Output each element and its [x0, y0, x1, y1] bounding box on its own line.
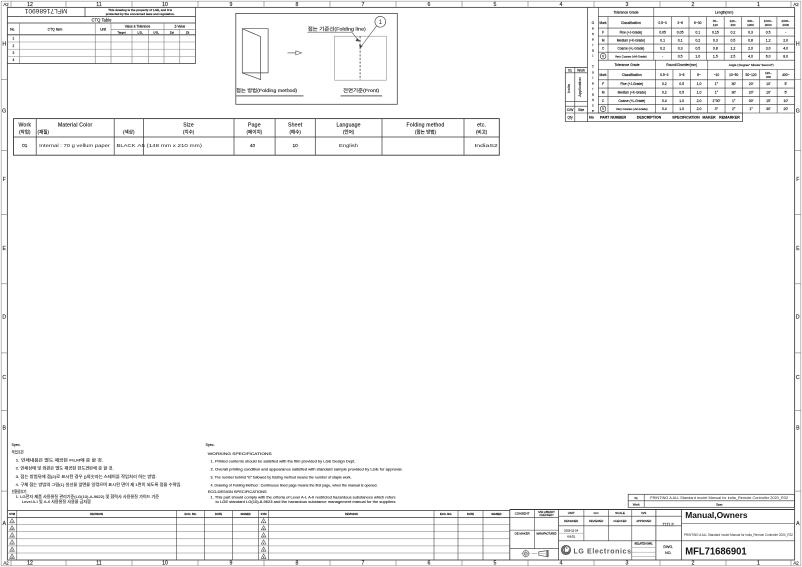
svg-text:4000: 4000	[782, 23, 789, 27]
svg-text:400~: 400~	[782, 73, 790, 77]
svg-text:2000: 2000	[765, 23, 772, 27]
svg-text:3.0: 3.0	[766, 46, 771, 50]
svg-text:5': 5'	[784, 82, 787, 86]
svg-text:Tolerance Grade: Tolerance Grade	[614, 63, 639, 67]
svg-text:0.5: 0.5	[679, 82, 684, 86]
svg-text:REMARKER: REMARKER	[719, 116, 740, 120]
svg-text:A: A	[2, 521, 6, 527]
svg-text:C: C	[796, 375, 800, 381]
svg-text:0.2: 0.2	[660, 46, 665, 50]
svg-text:1°30': 1°30'	[712, 99, 720, 103]
svg-text:MANUFACTURED: MANUFACTURED	[537, 532, 557, 535]
svg-text:Page: Page	[248, 123, 261, 129]
svg-text:0.3: 0.3	[748, 30, 753, 34]
svg-text:CHECKED?: CHECKED?	[539, 513, 554, 517]
svg-text:etc.: etc.	[477, 123, 486, 129]
svg-text:E: E	[2, 246, 6, 252]
svg-text:8: 8	[296, 2, 299, 8]
svg-text:접는 방법(Folding method): 접는 방법(Folding method)	[236, 87, 298, 93]
svg-text:Z-Value: Z-Value	[174, 25, 185, 29]
svg-text:MFL71686901: MFL71686901	[685, 546, 747, 557]
svg-text:30': 30'	[731, 90, 736, 94]
svg-text:B: B	[796, 426, 800, 432]
svg-text:01: 01	[635, 496, 639, 500]
svg-text:SYM: SYM	[9, 512, 16, 516]
svg-text:M: M	[602, 38, 605, 42]
svg-text:H: H	[2, 42, 6, 48]
svg-text:DWG.: DWG.	[663, 545, 673, 549]
svg-text:1: 1	[13, 37, 15, 41]
svg-text:0.4: 0.4	[662, 99, 667, 103]
svg-text:30': 30'	[731, 82, 736, 86]
svg-text:Coarse (+L-Grade): Coarse (+L-Grade)	[618, 99, 645, 103]
svg-text:protected by the concerned law: protected by the concerned laws and regu…	[106, 12, 175, 16]
svg-text:C: C	[2, 375, 6, 381]
svg-text:~10: ~10	[714, 73, 720, 77]
svg-text:Qty: Qty	[567, 116, 573, 120]
svg-text:A2: A2	[3, 2, 9, 7]
svg-text:4: 4	[560, 561, 563, 567]
svg-text:Folding method: Folding method	[407, 123, 445, 129]
svg-text:to LGE standard LG(10)-8-9623: to LGE standard LG(10)-8-9623 and the ha…	[216, 499, 396, 504]
svg-text:3. The number behind "E" follo: 3. The number behind "E" followed by fol…	[211, 474, 352, 479]
svg-text:9: 9	[230, 561, 233, 567]
svg-text:0.3: 0.3	[678, 46, 683, 50]
svg-text:F: F	[602, 30, 604, 34]
svg-text:(치수): (치수)	[183, 128, 195, 135]
svg-text:PRINTING A ALL Standard model: PRINTING A ALL Standard model Manual for…	[684, 533, 793, 537]
svg-text:6.0: 6.0	[766, 54, 771, 58]
svg-text:1.0: 1.0	[679, 107, 684, 111]
svg-text:(재질): (재질)	[38, 128, 50, 135]
svg-text:N/S: N/S	[641, 511, 646, 515]
svg-text:G: G	[592, 21, 595, 25]
svg-text:SIGNED: SIGNED	[240, 512, 250, 516]
svg-text:Spec.: Spec.	[206, 443, 215, 447]
svg-text:B: B	[2, 426, 6, 432]
svg-text:UNIT: UNIT	[568, 511, 575, 515]
svg-text:20': 20'	[749, 82, 754, 86]
svg-text:0.5: 0.5	[695, 46, 700, 50]
svg-text:a: a	[592, 49, 594, 53]
svg-text:0.5~3: 0.5~3	[660, 73, 669, 77]
svg-text:MFL71686901: MFL71686901	[24, 7, 67, 14]
svg-text:0.1: 0.1	[678, 38, 683, 42]
svg-text:a: a	[592, 93, 594, 97]
svg-text:F: F	[602, 82, 604, 86]
svg-text:IndiaS2: IndiaS2	[474, 143, 498, 149]
svg-text:Medium (+K-Grade): Medium (+K-Grade)	[617, 38, 645, 42]
svg-text:(색상): (색상)	[123, 128, 135, 135]
svg-text:DESCRIPTION: DESCRIPTION	[637, 116, 662, 120]
svg-text:Manual,Owners: Manual,Owners	[685, 510, 748, 520]
svg-text:TITLE: TITLE	[662, 522, 674, 527]
svg-text:RELATED DWG.: RELATED DWG.	[635, 543, 654, 546]
svg-text:9: 9	[230, 2, 233, 8]
svg-text:Work: Work	[633, 502, 640, 506]
svg-text:DATE: DATE	[467, 512, 474, 516]
svg-text:0.8: 0.8	[748, 38, 753, 42]
svg-text:20': 20'	[749, 90, 754, 94]
svg-text:Language: Language	[336, 123, 360, 129]
svg-text:(페이지): (페이지)	[247, 128, 263, 135]
svg-text:Tolerance Grade: Tolerance Grade	[613, 10, 638, 14]
svg-text:1: 1	[379, 19, 383, 26]
svg-text:1: 1	[757, 2, 760, 8]
svg-text:4.0: 4.0	[783, 46, 788, 50]
svg-text:Spec: Spec	[716, 502, 723, 506]
svg-text:Unit: Unit	[100, 28, 106, 32]
svg-text:Internal : 70 g vellum paper: Internal : 70 g vellum paper	[39, 143, 110, 149]
svg-text:Spec.: Spec.	[12, 443, 21, 447]
svg-text:G: G	[796, 109, 800, 115]
svg-text:2.0: 2.0	[697, 107, 702, 111]
svg-text:Application: Application	[577, 77, 582, 97]
svg-text:0.05: 0.05	[677, 30, 684, 34]
svg-text:30': 30'	[749, 99, 754, 103]
svg-text:1°: 1°	[715, 90, 719, 94]
svg-text:6: 6	[428, 2, 431, 8]
svg-text:G: G	[2, 109, 6, 115]
svg-text:2. Overall printing condition: 2. Overall printing condition and appear…	[211, 466, 403, 471]
svg-text:2.0: 2.0	[697, 99, 702, 103]
svg-text:Size: Size	[578, 108, 584, 112]
svg-text:Size: Size	[183, 123, 194, 129]
svg-text:10': 10'	[766, 90, 771, 94]
svg-text:3. 접는 방법뒤에 접(2)로 표시된 경우 ()의숫자는: 3. 접는 방법뒤에 접(2)로 표시된 경우 ()의숫자는 스테이플 작업처리…	[16, 473, 157, 479]
svg-text:E: E	[796, 246, 800, 252]
svg-text:H: H	[796, 42, 800, 48]
svg-text:5': 5'	[784, 90, 787, 94]
svg-text:4: 4	[560, 2, 563, 8]
svg-text:15': 15'	[766, 99, 771, 103]
svg-text:SYM: SYM	[261, 512, 268, 516]
svg-text:4: 4	[13, 58, 15, 62]
svg-text:5: 5	[494, 2, 497, 8]
svg-text:접는 기준선(Folding line): 접는 기준선(Folding line)	[308, 26, 367, 33]
svg-text:ECO. NO.: ECO. NO.	[185, 512, 197, 516]
svg-text:T: T	[592, 65, 594, 69]
svg-text:e: e	[592, 38, 594, 42]
svg-text:1.0: 1.0	[697, 82, 702, 86]
svg-text:3~6: 3~6	[679, 73, 685, 77]
svg-text:1.2: 1.2	[766, 38, 771, 42]
svg-text:1°: 1°	[715, 82, 719, 86]
svg-text:0.4: 0.4	[662, 107, 667, 111]
svg-text:4. Drawing of Folding Method :: 4. Drawing of Folding Method : Continuou…	[211, 483, 378, 488]
svg-text:Classification: Classification	[622, 73, 642, 77]
svg-text:10: 10	[162, 561, 168, 567]
svg-text:Angle (:Degree° Minute' Second: Angle (:Degree° Minute' Second″)	[729, 63, 774, 67]
svg-text:0.2: 0.2	[731, 30, 736, 34]
svg-text:Coarse (+L-Grade): Coarse (+L-Grade)	[617, 46, 644, 50]
svg-text:NO.: NO.	[665, 551, 671, 555]
svg-text:4.0: 4.0	[748, 54, 753, 58]
svg-text:D: D	[2, 315, 6, 321]
svg-text:10~50: 10~50	[729, 73, 738, 77]
svg-text:India: India	[566, 83, 571, 92]
svg-text:WORKING SPECIFICATIONS: WORKING SPECIFICATIONS	[208, 451, 272, 456]
svg-text:0.5: 0.5	[679, 90, 684, 94]
svg-text:No: No	[589, 116, 595, 120]
svg-text:6~30: 6~30	[694, 21, 702, 25]
svg-text:BLACK: BLACK	[117, 143, 137, 149]
svg-text:OE MAKER: OE MAKER	[514, 531, 529, 535]
svg-text:A2: A2	[3, 561, 9, 566]
svg-text:DESIGNED: DESIGNED	[564, 519, 578, 523]
svg-text:Level A-I 및 A-II 사용물질 사용을 금지함: Level A-I 및 A-II 사용물질 사용을 금지함	[22, 498, 91, 504]
svg-text:Value & Tolerance: Value & Tolerance	[125, 25, 151, 29]
svg-text:REVIEWED: REVIEWED	[589, 519, 603, 523]
svg-text:Material Color: Material Color	[58, 123, 93, 129]
svg-text:20': 20'	[784, 107, 789, 111]
svg-text:SPECIFICATION: SPECIFICATION	[672, 116, 700, 120]
svg-text:10: 10	[162, 2, 168, 8]
svg-text:0.1: 0.1	[695, 30, 700, 34]
svg-text:10: 10	[293, 143, 299, 149]
svg-text:6: 6	[428, 561, 431, 567]
svg-text:(작업): (작업)	[19, 128, 31, 135]
svg-text:M: M	[602, 90, 605, 94]
svg-text:01: 01	[568, 68, 572, 72]
svg-text:LSL: LSL	[138, 31, 144, 35]
svg-text:No.: No.	[10, 28, 15, 32]
svg-text:(비고): (비고)	[476, 128, 488, 135]
svg-text:2.5: 2.5	[731, 54, 736, 58]
svg-text:1: 1	[757, 561, 760, 567]
svg-text:Length(mm): Length(mm)	[715, 10, 733, 14]
svg-text:01: 01	[22, 143, 28, 149]
svg-text:Fine (+J-Grade): Fine (+J-Grade)	[621, 82, 644, 86]
svg-text:1°: 1°	[749, 107, 753, 111]
svg-text:Zst: Zst	[170, 31, 174, 35]
svg-text:English: English	[339, 143, 358, 149]
svg-text:Fine (+J-Grade): Fine (+J-Grade)	[620, 30, 643, 34]
svg-text:Work: Work	[19, 123, 32, 129]
svg-text:3~6: 3~6	[677, 21, 683, 25]
svg-text:(접는 방법): (접는 방법)	[415, 128, 437, 134]
svg-text:2.0: 2.0	[748, 46, 753, 50]
svg-text:120: 120	[713, 23, 718, 27]
svg-text:1.0: 1.0	[695, 54, 700, 58]
svg-text:PRINTING A ALL Standard model: PRINTING A ALL Standard model Manual for…	[650, 496, 788, 500]
svg-text:7: 7	[362, 561, 365, 567]
svg-text:CTQ Table: CTQ Table	[92, 17, 113, 22]
svg-text:(언어): (언어)	[343, 128, 355, 135]
svg-text:n: n	[592, 98, 594, 102]
svg-text:PART NUMBER: PART NUMBER	[600, 116, 627, 120]
svg-text:DATE: DATE	[215, 512, 222, 516]
svg-text:LG Electronics: LG Electronics	[574, 548, 632, 555]
svg-text:11: 11	[96, 2, 101, 8]
svg-text:1.0: 1.0	[679, 99, 684, 103]
svg-text:0.1: 0.1	[660, 38, 665, 42]
svg-text:7: 7	[362, 2, 365, 8]
svg-text:40: 40	[250, 143, 256, 149]
svg-text:Round/Chamfer(mm): Round/Chamfer(mm)	[666, 63, 697, 67]
svg-text:D: D	[796, 315, 800, 321]
svg-text:작업조건: 작업조건	[12, 449, 24, 455]
svg-text:e: e	[592, 82, 594, 86]
svg-text:A: A	[796, 521, 800, 527]
svg-text:A5 (148 mm x 210 mm): A5 (148 mm x 210 mm)	[137, 143, 202, 149]
svg-text:1.2: 1.2	[731, 46, 736, 50]
svg-text:12: 12	[27, 2, 33, 8]
svg-text:F: F	[3, 177, 6, 183]
svg-text:8.0: 8.0	[783, 54, 788, 58]
svg-text:400: 400	[730, 23, 735, 27]
svg-text:0.8: 0.8	[713, 46, 718, 50]
svg-text:3: 3	[626, 2, 629, 8]
svg-text:CONSENT: CONSENT	[515, 512, 530, 516]
svg-text:0.15: 0.15	[712, 30, 719, 34]
svg-text:2019-11-14: 2019-11-14	[564, 528, 579, 532]
svg-text:Zlt: Zlt	[186, 31, 189, 35]
svg-text:F: F	[796, 177, 799, 183]
svg-text:1°: 1°	[732, 99, 736, 103]
svg-text:8: 8	[296, 561, 299, 567]
svg-text:2. 인쇄상태 및 외관은 별도 제공된 한도견본에 준 할: 2. 인쇄상태 및 외관은 별도 제공된 한도견본에 준 할 것.	[16, 464, 114, 470]
svg-text:REVISION: REVISION	[90, 512, 103, 516]
svg-text:12: 12	[27, 561, 33, 567]
svg-text:0.5~3: 0.5~3	[658, 21, 667, 25]
svg-text:o: o	[592, 71, 594, 75]
svg-text:0.2: 0.2	[662, 82, 667, 86]
svg-text:3°: 3°	[715, 107, 719, 111]
svg-text:0.05: 0.05	[659, 30, 666, 34]
svg-text:Mark: Mark	[600, 21, 607, 25]
svg-text:10': 10'	[784, 99, 789, 103]
svg-text:1. 인쇄내용은 별도 제공된 FILM에 준 할 것.: 1. 인쇄내용은 별도 제공된 FILM에 준 할 것.	[16, 457, 104, 463]
svg-text:APPROVED: APPROVED	[636, 519, 651, 523]
svg-text:(매수): (매수)	[289, 128, 301, 135]
svg-text:ECO. NO.: ECO. NO.	[440, 512, 452, 516]
svg-text:0.2: 0.2	[662, 90, 667, 94]
svg-text:USL: USL	[153, 31, 159, 35]
svg-text:3: 3	[13, 51, 15, 55]
svg-text:Classification: Classification	[621, 21, 641, 25]
svg-text:2: 2	[13, 44, 15, 48]
svg-text:6:6:51: 6:6:51	[567, 535, 575, 539]
svg-text:Medium (+K-Grade): Medium (+K-Grade)	[618, 90, 646, 94]
svg-text:2.0: 2.0	[783, 38, 788, 42]
svg-text:Very Coarse (+M-Grade): Very Coarse (+M-Grade)	[615, 54, 647, 58]
svg-text:n: n	[592, 32, 594, 36]
svg-text:1000: 1000	[747, 23, 754, 27]
svg-text:2: 2	[692, 2, 695, 8]
svg-text:Mark: Mark	[600, 73, 607, 77]
svg-text:3: 3	[626, 561, 629, 567]
svg-text:C/W: C/W	[567, 108, 574, 112]
svg-text:MAKER: MAKER	[702, 116, 716, 120]
svg-text:1.5: 1.5	[713, 54, 718, 58]
svg-text:전면기준(Front): 전면기준(Front)	[343, 87, 380, 94]
svg-text:A2: A2	[793, 561, 799, 566]
svg-text:2°: 2°	[732, 107, 736, 111]
svg-text:SCALE: SCALE	[615, 511, 625, 515]
svg-text:REVISION: REVISION	[345, 512, 358, 516]
svg-text:A2: A2	[793, 2, 799, 7]
svg-text:5: 5	[494, 561, 497, 567]
svg-text:Target: Target	[117, 31, 126, 35]
svg-text:e: e	[592, 109, 594, 113]
svg-text:SIGNED: SIGNED	[491, 512, 501, 516]
svg-text:0.2: 0.2	[695, 38, 700, 42]
svg-text:Work: Work	[577, 68, 585, 72]
svg-text:0.5: 0.5	[731, 38, 736, 42]
svg-text:mm: mm	[594, 511, 599, 515]
svg-text:1. Printed contents should be: 1. Printed contents should be satisfied …	[211, 459, 356, 464]
svg-text:11: 11	[96, 561, 101, 567]
svg-text:e: e	[592, 27, 594, 31]
svg-text:CTQ Item: CTQ Item	[48, 28, 63, 32]
svg-text:6~: 6~	[697, 73, 701, 77]
svg-text:CHECKED: CHECKED	[613, 519, 626, 523]
svg-text:Sheet: Sheet	[288, 123, 303, 129]
svg-text:c: c	[592, 104, 594, 108]
svg-text:400: 400	[766, 75, 771, 79]
svg-text:0.3: 0.3	[713, 38, 718, 42]
svg-text:0.5: 0.5	[678, 54, 683, 58]
svg-text:4. 구체 접는 방법의 그림(1) 실선을 앞면을 일컦으: 4. 구체 접는 방법의 그림(1) 실선을 앞면을 일컦으며 표시된 면이 제…	[16, 481, 182, 487]
svg-text:50~120: 50~120	[746, 73, 757, 77]
svg-text:30': 30'	[766, 107, 771, 111]
svg-text:2: 2	[692, 561, 695, 567]
svg-text:1.0: 1.0	[697, 90, 702, 94]
svg-text:Very Coarse (+M-Grade): Very Coarse (+M-Grade)	[616, 107, 648, 111]
svg-text:0.5: 0.5	[766, 30, 771, 34]
svg-text:10': 10'	[766, 82, 771, 86]
